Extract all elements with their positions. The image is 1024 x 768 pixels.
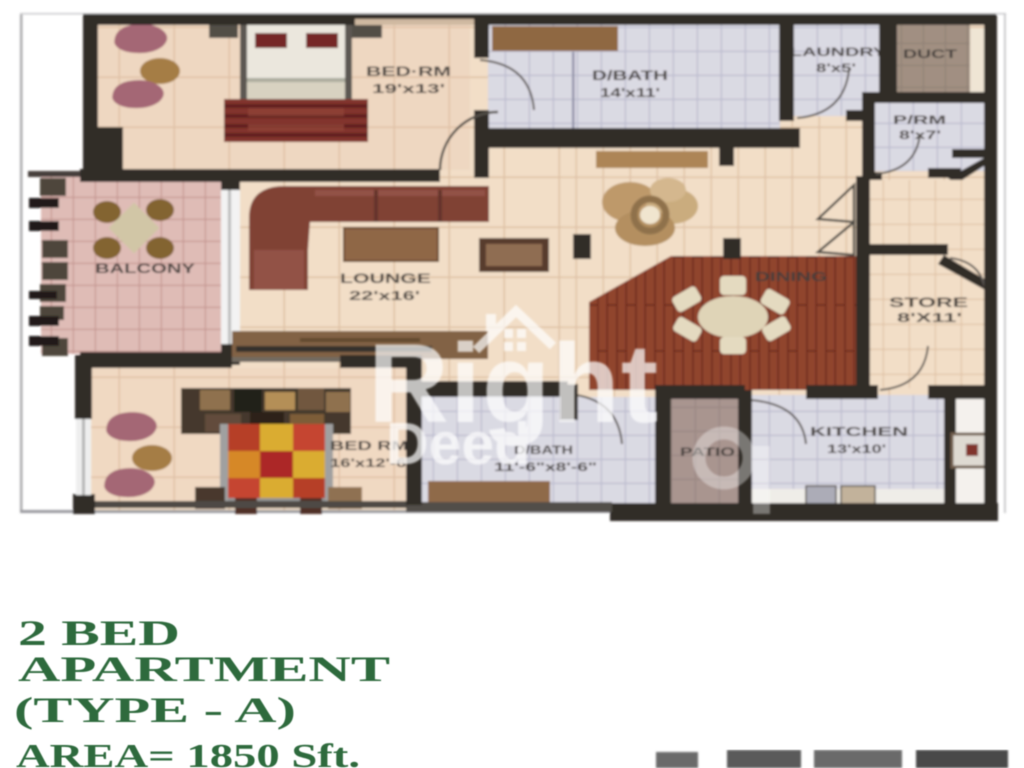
svg-text:(TYPE - A): (TYPE - A) xyxy=(14,690,296,730)
svg-text:AREA= 1850 Sft.: AREA= 1850 Sft. xyxy=(16,738,360,768)
svg-text:Deed: Deed xyxy=(386,411,530,477)
svg-text:APARTMENT: APARTMENT xyxy=(18,649,390,689)
svg-text:2 BED: 2 BED xyxy=(18,613,180,653)
